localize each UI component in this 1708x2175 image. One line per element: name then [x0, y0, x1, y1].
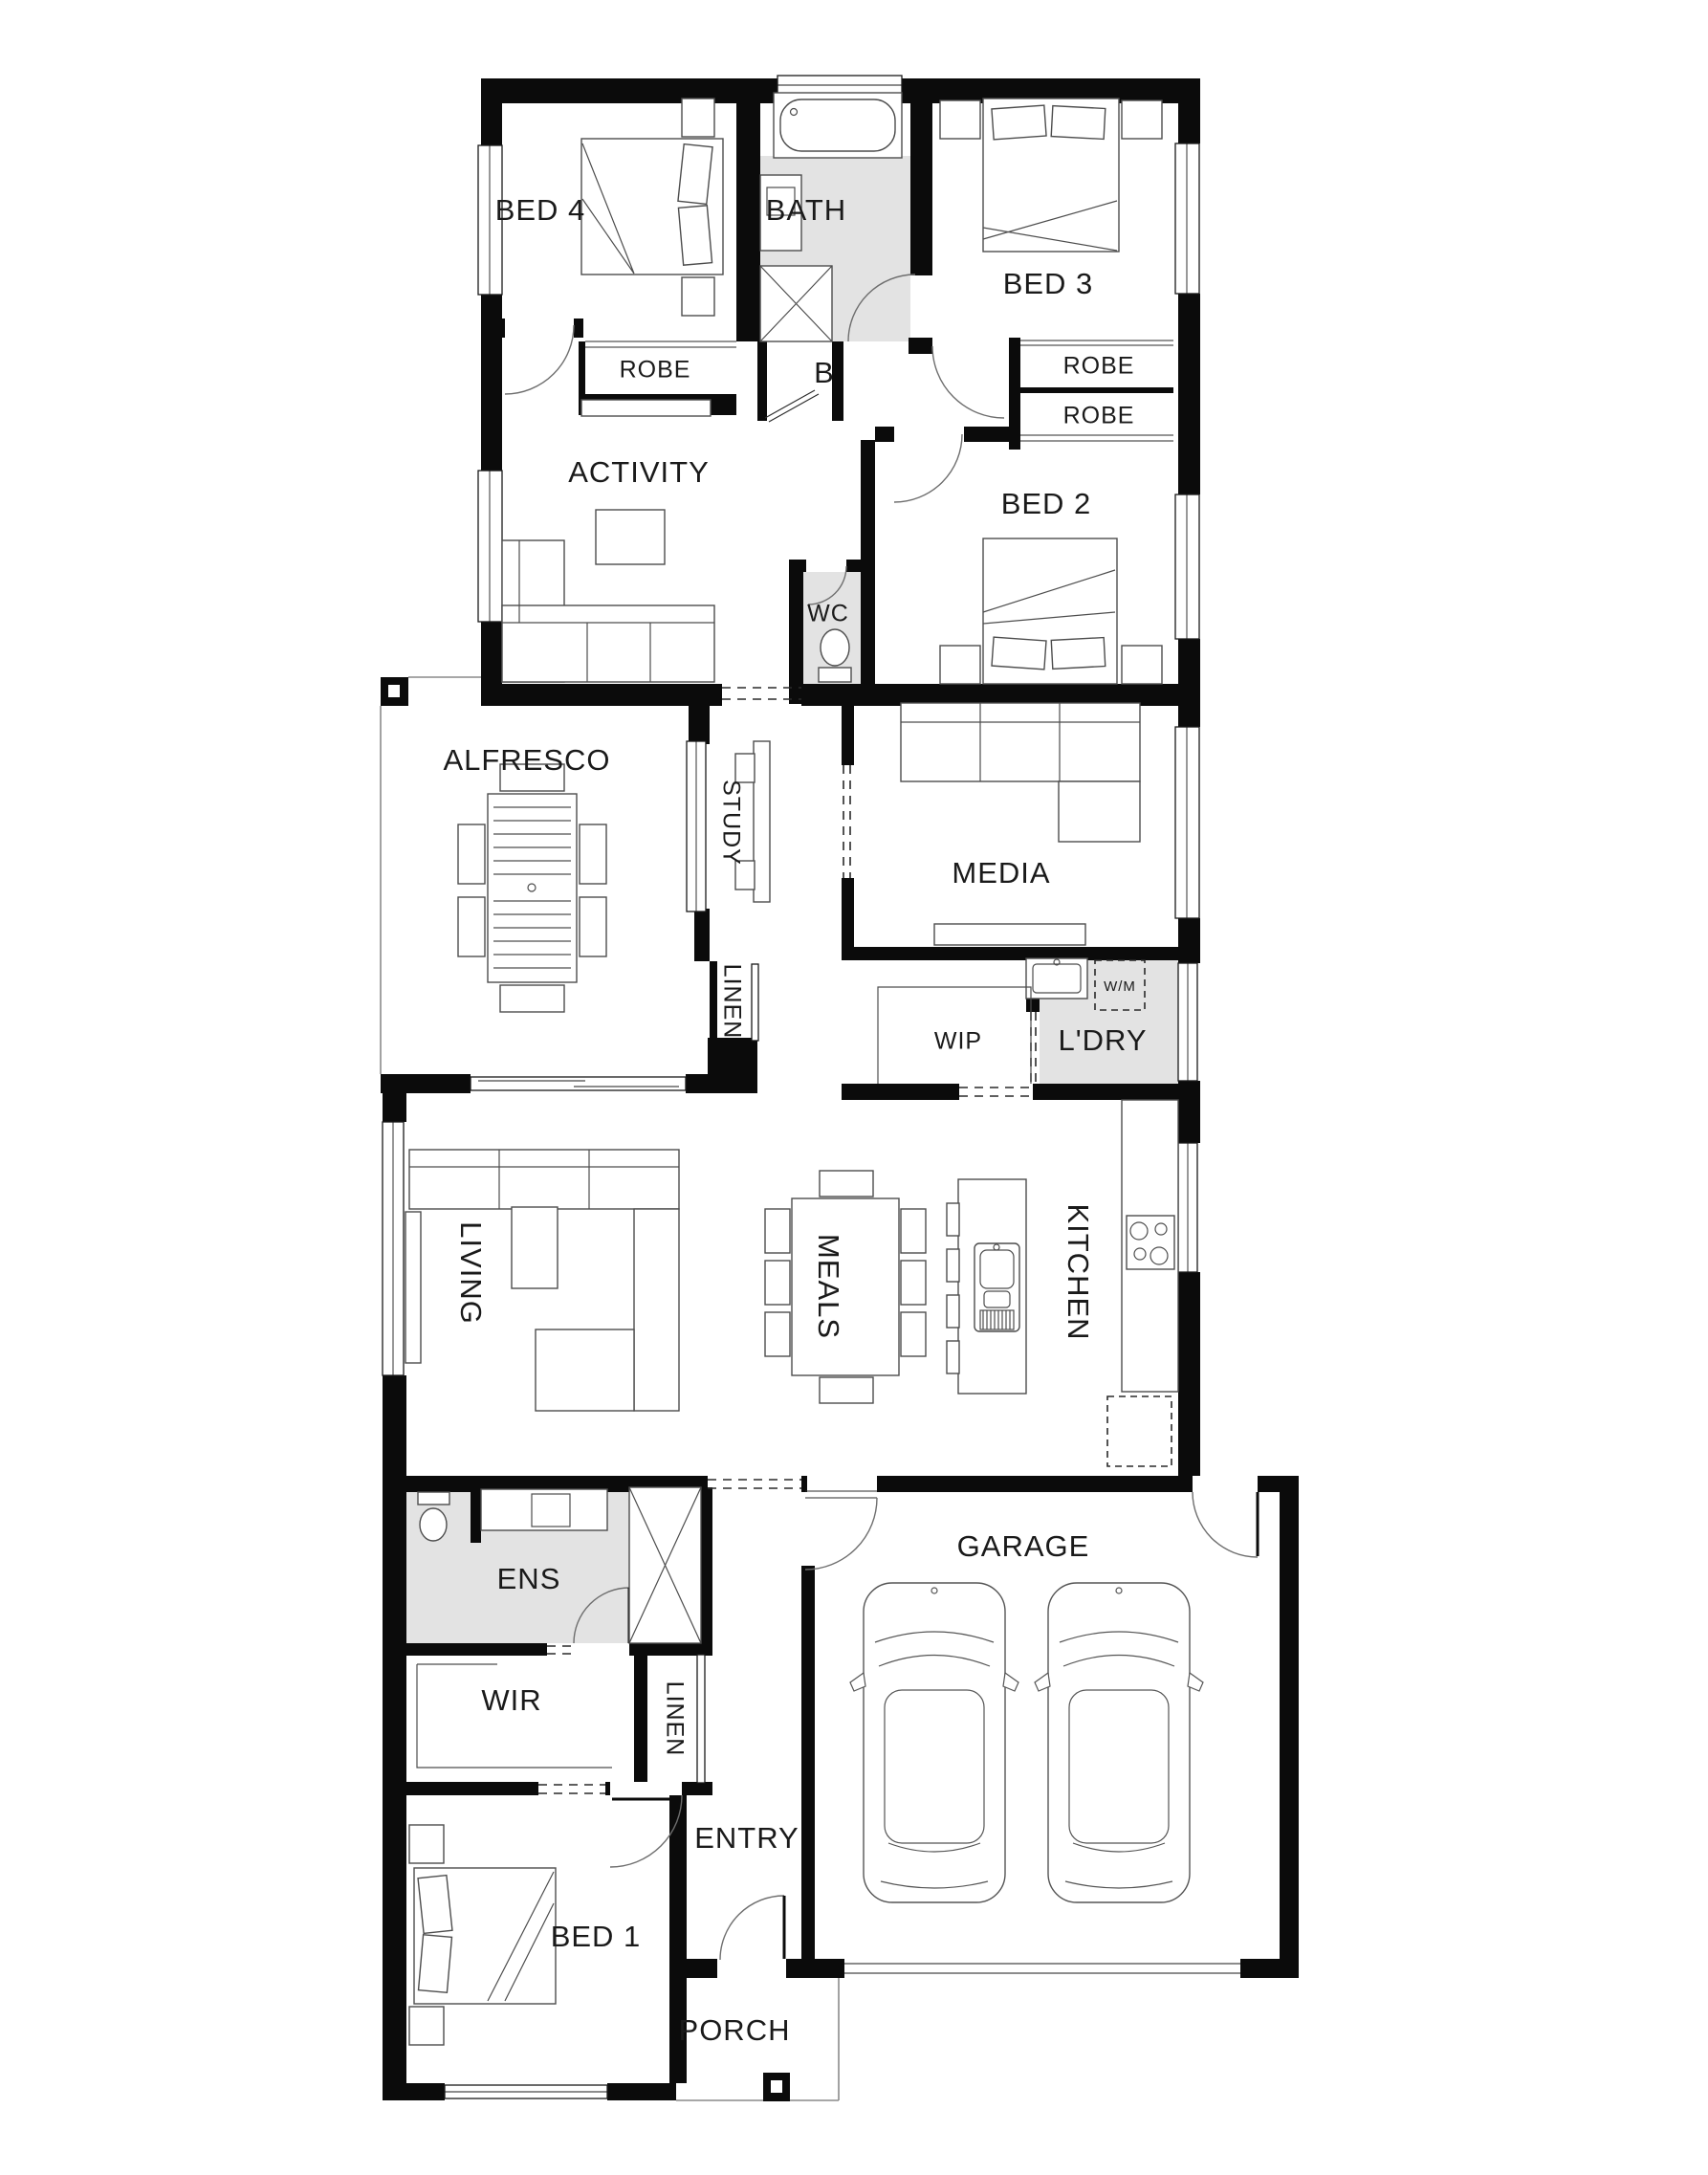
car-left [850, 1583, 1018, 1902]
garage-panel-door [844, 1961, 1240, 1976]
label-bed4: BED 4 [495, 193, 586, 227]
dining-chair [765, 1209, 790, 1253]
label-ldry: L'DRY [1058, 1023, 1147, 1057]
label-activity: ACTIVITY [568, 455, 710, 489]
activity-window [478, 471, 502, 622]
bed3-pillow [1051, 106, 1106, 140]
wc-toilet [819, 629, 851, 682]
label-living: LIVING [454, 1221, 488, 1325]
label-kitchen: KITCHEN [1062, 1203, 1095, 1340]
kitchen-window [1178, 1143, 1197, 1272]
study-stacker-door [687, 741, 706, 912]
bed1-side-table [409, 1825, 444, 1863]
island-sink [974, 1243, 1019, 1331]
dining-chair [765, 1261, 790, 1305]
label-bed3: BED 3 [1003, 267, 1094, 300]
dining-chair [765, 1312, 790, 1356]
bed4-side-table [682, 277, 714, 316]
label-wip: WIP [934, 1028, 982, 1055]
ldry-window [1178, 963, 1197, 1081]
dining-chair [901, 1312, 926, 1356]
label-ens: ENS [497, 1562, 561, 1595]
label-wir: WIR [481, 1683, 541, 1717]
living-window [383, 1122, 404, 1375]
alfresco-sliding-door [471, 1077, 686, 1090]
media-sofa [901, 703, 1140, 781]
media-sofa-chaise [1059, 781, 1140, 842]
living-tv-unit [405, 1212, 421, 1363]
alfresco-post-core [388, 685, 400, 697]
alfresco-chair [458, 824, 485, 884]
linen-entry-sliding-door [697, 1655, 705, 1783]
media-window [1175, 727, 1199, 918]
bed4-side-table [682, 99, 714, 137]
bathtub-inner [780, 99, 895, 151]
dining-chair [901, 1209, 926, 1253]
label-linen-entry: LINEN [661, 1681, 688, 1757]
study-desk [754, 741, 770, 902]
bed1-pillow [418, 1876, 452, 1934]
label-bed2: BED 2 [1001, 487, 1092, 520]
activity-table [596, 510, 665, 564]
label-media: MEDIA [952, 856, 1050, 890]
bed4-pillow [678, 144, 712, 205]
ens-shower [629, 1487, 701, 1643]
bed1-window [445, 2085, 607, 2098]
study-chair [735, 754, 755, 782]
label-wc: WC [807, 601, 849, 627]
label-b-closet: B [814, 356, 835, 389]
activity-sofa [502, 605, 714, 682]
activity-sideboard [581, 400, 711, 416]
linen-hall-sliding-door [752, 964, 758, 1041]
label-robe-bed3-upper: ROBE [1063, 353, 1135, 380]
alfresco-chair-bottom [500, 985, 564, 1012]
bath-window [777, 76, 902, 95]
alfresco-chair [580, 824, 606, 884]
ens-toilet-bowl [420, 1508, 447, 1541]
ens-vanity [481, 1489, 607, 1530]
label-bed1: BED 1 [551, 1920, 642, 1953]
floor-plan-page: BED 4 BATH BED 3 ROBE B ROBE ROBE ACTIVI… [0, 0, 1708, 2175]
label-study: STUDY [717, 780, 744, 866]
bed2-pillow [992, 637, 1046, 670]
bed1-pillow [419, 1935, 452, 1992]
bed2-side-table [1122, 646, 1162, 684]
living-sofa-arm [634, 1209, 679, 1411]
car-right [1035, 1583, 1203, 1902]
bed4-pillow [678, 206, 712, 265]
bed3-side-table [940, 100, 980, 139]
dining-chair [820, 1377, 873, 1403]
living-coffee-table [512, 1207, 558, 1288]
alfresco-chair [580, 897, 606, 956]
bed3-side-table [1122, 100, 1162, 139]
label-porch: PORCH [679, 2013, 791, 2047]
label-meals: MEALS [812, 1234, 845, 1339]
dining-chair [820, 1171, 873, 1197]
label-robe-bed3-lower: ROBE [1063, 403, 1135, 429]
label-wm: W/M [1104, 978, 1136, 995]
label-entry: ENTRY [694, 1821, 799, 1855]
bed3-window [1175, 143, 1199, 294]
bed2-pillow [1051, 638, 1105, 670]
label-alfresco: ALFRESCO [443, 743, 610, 777]
island-bench [947, 1179, 1026, 1394]
cooktop [1127, 1216, 1174, 1269]
label-garage: GARAGE [957, 1529, 1090, 1563]
floor-plan-drawing: BED 4 BATH BED 3 ROBE B ROBE ROBE ACTIVI… [0, 0, 1708, 2175]
bed3-pillow [992, 105, 1046, 140]
living-sofa-back [409, 1150, 679, 1209]
label-bath: BATH [766, 193, 846, 227]
bath-shower [760, 266, 832, 341]
ens-toilet-tank [418, 1492, 449, 1505]
bed1-side-table [409, 2007, 444, 2045]
dining-chair [901, 1261, 926, 1305]
living-sofa-chaise [536, 1329, 634, 1411]
alfresco-chair [458, 897, 485, 956]
porch-post-core [771, 2080, 782, 2093]
bed2-window [1175, 494, 1199, 639]
label-linen-hall: LINEN [718, 964, 745, 1040]
bed2-side-table [940, 646, 980, 684]
label-robe-bed4: ROBE [620, 357, 691, 384]
media-tv-unit [934, 924, 1085, 945]
